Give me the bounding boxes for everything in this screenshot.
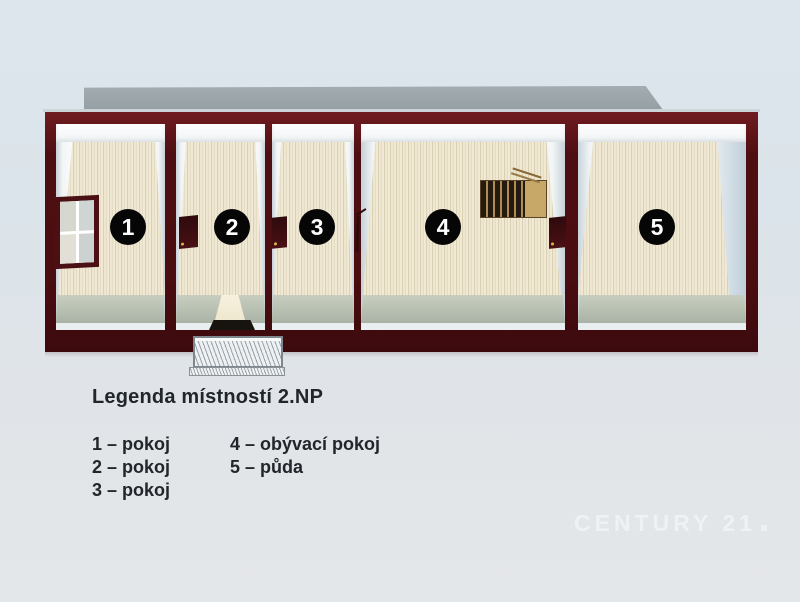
legend-title: Legenda místností 2.NP [92,386,368,409]
legend-item: 4 – obývací pokoj [230,433,368,456]
legend-column-1: 1 – pokoj 2 – pokoj 3 – pokoj [92,433,230,502]
century21-watermark: CENTURY 21 [574,510,767,537]
legend-item: 5 – půda [230,456,368,479]
room-far-wall [56,124,165,142]
balcony-base-icon [189,367,285,376]
building-2np: 1 2 3 4 5 [45,112,758,352]
window-icon [55,195,99,269]
room-floor-shadow [272,295,354,323]
floorplan-canvas: 1 2 3 4 5 [0,0,800,602]
door-opening-icon [272,216,287,249]
room-floor-shadow [578,295,746,323]
room-5-puda: 5 [578,124,746,330]
watermark-square-mark [761,525,767,531]
legend-item: 1 – pokoj [92,433,230,456]
room-near-wall [361,323,565,330]
room-number-badge: 5 [639,209,675,245]
door-opening-icon [549,216,566,249]
window-pane [60,201,76,231]
room-floor-shadow [56,295,165,323]
room-near-wall [56,323,165,330]
room-floor-shadow [361,295,565,323]
room-number-badge: 1 [110,209,146,245]
room-number-badge: 2 [214,209,250,245]
room-far-wall [272,124,354,142]
room-number-badge: 4 [425,209,461,245]
door-opening-icon [179,215,198,249]
legend: Legenda místností 2.NP 1 – pokoj 2 – pok… [92,386,368,502]
room-near-wall [578,323,746,330]
window-pane [79,200,95,230]
room-far-wall [361,124,565,142]
room-floor [361,142,565,295]
doormat-icon [209,320,255,330]
room-near-wall [272,323,354,330]
balcony-railing-icon [193,336,283,368]
legend-item: 2 – pokoj [92,456,230,479]
staircase-icon [480,180,547,218]
watermark-text: CENTURY 21 [574,510,756,536]
room-4-obyvaci-pokoj: 4 [361,124,565,330]
open-door-leaf-icon [355,216,359,252]
legend-columns: 1 – pokoj 2 – pokoj 3 – pokoj 4 – obývac… [92,433,368,502]
room-far-wall [176,124,265,142]
window-pane [60,234,76,264]
room-far-wall [578,124,746,142]
legend-item: 3 – pokoj [92,479,230,502]
legend-column-2: 4 – obývací pokoj 5 – půda [230,433,368,502]
room-number-badge: 3 [299,209,335,245]
window-pane [79,233,95,263]
